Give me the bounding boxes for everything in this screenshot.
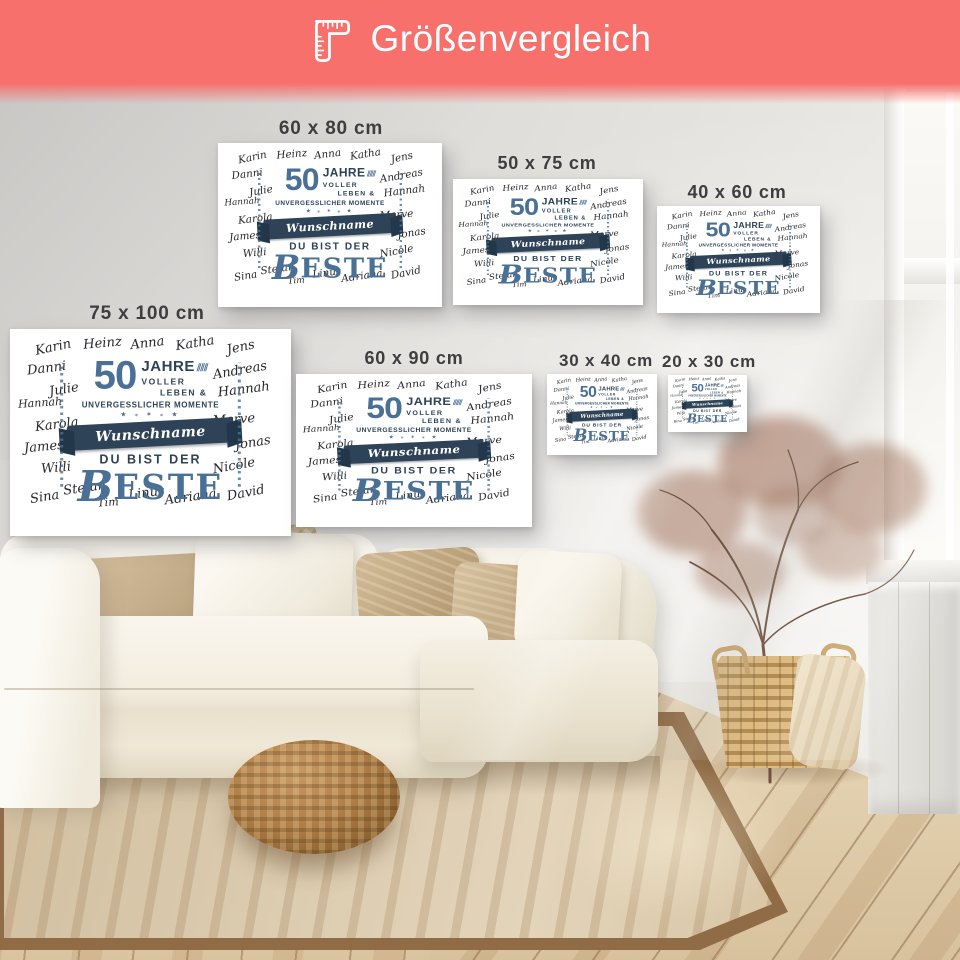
poster-artwork: KarinHeinzAnnaKathaJensDanniAndreasJulie… [296,374,532,527]
laurel-decor: ⫽⫽⫽ [620,387,624,391]
size-label: 30 x 40 cm [559,351,653,371]
artwork-headline-col: JAHRE⫽⫽⫽VOLLERLEBEN & [323,166,376,197]
artwork-voller: VOLLER [542,208,587,214]
decor-column-left [487,199,489,275]
rattan-pouf [228,740,400,854]
beste-initial: B [687,414,697,423]
size-label: 60 x 90 cm [364,348,463,369]
decor-column-left [258,169,260,267]
artwork-name: Heinz [575,377,590,383]
size-label: 20 x 30 cm [662,352,756,372]
artwork-name: Karin [469,184,495,196]
artwork-ribbon: Wunschname [569,408,635,421]
artwork-beste: BESTE [686,278,792,296]
artwork-ribbon: Wunschname [690,251,787,268]
artwork-name: Sina [312,492,338,505]
artwork-headline-col: JAHRE⫽⫽⫽VOLLERLEBEN & [542,197,587,221]
artwork-name: Sina [466,276,487,287]
beste-initial: B [573,429,587,442]
artwork-number: 50 [366,395,402,421]
artwork-name: Anna [534,183,558,193]
artwork-name: Karin [316,380,348,395]
poster-frame: KarinHeinzAnnaKathaJensDanniAndreasJulie… [668,375,747,432]
sofa-armrest [0,548,100,808]
artwork-name: Karin [237,150,268,166]
artwork-name: Karin [671,211,693,222]
artwork-jahre: JAHRE⫽⫽⫽ [406,396,461,407]
artwork-name: Katha [175,334,216,353]
artwork-wunschname: Wunschname [692,401,723,407]
artwork-voller: VOLLER [323,180,376,188]
beste-rest: ESTE [717,281,781,295]
decor-column-right [607,199,609,275]
artwork-wunschname: Wunschname [706,255,770,266]
beste-initial: B [78,470,114,504]
beste-rest: ESTE [300,258,388,280]
poster-frame: KarinHeinzAnnaKathaJensDanniAndreasJulie… [657,206,820,313]
artwork-name: Jens [599,185,619,196]
beste-rest: ESTE [587,431,630,442]
artwork-momente: UNVERGESSLICHER MOMENTE [486,222,610,228]
artwork-name: Sina [554,436,566,443]
poster-artwork: KarinHeinzAnnaKathaJensDanniAndreasJulie… [453,179,643,305]
artwork-center: 50JAHRE⫽⫽⫽VOLLERLEBEN &UNVERGESSLICHER M… [59,358,242,502]
artwork-beste: BESTE [257,253,403,280]
artwork-name: Hannah [224,196,260,207]
artwork-ribbon: Wunschname [263,213,397,240]
artwork-name: Hannah [458,220,488,229]
artwork-name: Karin [557,377,572,385]
artwork-number: 50 [510,197,539,219]
artwork-headline: 50JAHRE⫽⫽⫽VOLLERLEBEN & [257,166,403,197]
artwork-name: Katha [565,182,592,194]
laurel-decor: ⫽⫽⫽ [579,200,586,207]
artwork-name: Anna [397,379,427,392]
decor-column-right [238,362,241,486]
artwork-headline-col: JAHRE⫽⫽⫽VOLLERLEBEN & [406,395,461,424]
artwork-name: Heinz [357,379,390,391]
poster-artwork: KarinHeinzAnnaKathaJensDanniAndreasJulie… [10,329,291,536]
artwork-momente: UNVERGESSLICHER MOMENTE [686,243,792,248]
beste-rest: ESTE [113,475,223,502]
decor-column-left [567,387,568,436]
artwork-name: Heinz [502,183,529,193]
artwork-wunschname: Wunschname [580,411,624,420]
artwork-wunschname: Wunschname [286,217,375,234]
artwork-name: Karin [34,338,72,358]
ruler-icon [308,16,354,62]
beste-rest: ESTE [383,482,475,502]
poster-artwork: KarinHeinzAnnaKathaJensDanniAndreasJulie… [547,374,657,455]
product-image: 60 x 80 cmKarinHeinzAnnaKathaJensDanniAn… [0,0,960,960]
artwork-beste: BESTE [59,467,242,501]
decor-column-left [338,398,340,490]
artwork-headline-col: JAHRE⫽⫽⫽VOLLERLEBEN & [733,221,771,241]
artwork-name: Anna [314,148,342,162]
poster-artwork: KarinHeinzAnnaKathaJensDanniAndreasJulie… [218,143,442,307]
artwork-center: 50JAHRE⫽⫽⫽VOLLERLEBEN &UNVERGESSLICHER M… [686,221,792,295]
artwork-name: Heinz [276,148,308,161]
decor-column-right [732,384,733,418]
artwork-name: Katha [350,147,382,162]
artwork-voller: VOLLER [141,376,207,386]
size-label: 50 x 75 cm [497,153,596,174]
artwork-jahre: JAHRE⫽⫽⫽ [598,386,624,392]
artwork-headline: 50JAHRE⫽⫽⫽VOLLERLEBEN & [686,221,792,241]
decor-column-left [686,223,687,287]
artwork-name: Anna [594,376,608,383]
artwork-voller: VOLLER [406,409,461,416]
artwork-beste: BESTE [337,476,490,501]
beste-rest: ESTE [523,268,597,285]
artwork-number: 50 [580,385,597,399]
artwork-momente: UNVERGESSLICHER MOMENTE [257,199,403,206]
artwork-center: 50JAHRE⫽⫽⫽VOLLERLEBEN &UNVERGESSLICHER M… [257,166,403,280]
artwork-name: Katha [753,209,777,219]
laurel-decor: ⫽⫽⫽ [721,384,724,387]
artwork-leben: LEBEN & [542,214,587,220]
artwork-jahre: JAHRE⫽⫽⫽ [705,383,724,387]
artwork-name: Hannah [18,396,63,410]
artwork-name: Sina [233,269,258,283]
artwork-headline: 50JAHRE⫽⫽⫽VOLLERLEBEN & [337,395,490,424]
artwork-name: Hannah [303,423,341,433]
decor-column-left [682,384,683,418]
artwork-ribbon: Wunschname [344,439,485,464]
artwork-center: 50JAHRE⫽⫽⫽VOLLERLEBEN &UNVERGESSLICHER M… [486,197,610,285]
artwork-leben: LEBEN & [323,189,376,197]
beste-rest: ESTE [697,415,728,423]
artwork-jahre: JAHRE⫽⫽⫽ [323,167,376,179]
poster-frame: KarinHeinzAnnaKathaJensDanniAndreasJulie… [453,179,643,305]
artwork-leben: LEBEN & [406,417,461,424]
poster-frame: KarinHeinzAnnaKathaJensDanniAndreasJulie… [296,374,532,527]
artwork-wunschname: Wunschname [510,236,585,249]
artwork-name: Heinz [699,209,722,217]
artwork-name: Sina [29,488,60,505]
artwork-center: 50JAHRE⫽⫽⫽VOLLERLEBEN &UNVERGESSLICHER M… [682,383,733,423]
page-title: Größenvergleich [370,18,651,60]
artwork-headline: 50JAHRE⫽⫽⫽VOLLERLEBEN & [59,358,242,397]
artwork-name: Hannah [550,400,568,406]
artwork-name: Anna [130,335,165,352]
artwork-beste: BESTE [566,428,638,441]
artwork-beste: BESTE [682,413,733,422]
laurel-decor: ⫽⫽⫽ [453,399,462,407]
artwork-name: Heinz [83,336,123,352]
beste-initial: B [353,478,383,503]
decor-column-left [61,362,64,486]
artwork-ribbon: Wunschname [491,233,604,254]
artwork-ribbon: Wunschname [67,417,235,451]
size-label: 75 x 100 cm [89,303,205,325]
artwork-name: Jens [477,381,502,395]
artwork-headline-col: JAHRE⫽⫽⫽VOLLERLEBEN & [598,385,624,400]
artwork-name: Jens [390,151,414,166]
poster-frame: KarinHeinzAnnaKathaJensDanniAndreasJulie… [547,374,657,455]
artwork-name: Anna [727,209,748,218]
artwork-center: 50JAHRE⫽⫽⫽VOLLERLEBEN &UNVERGESSLICHER M… [566,385,638,441]
beste-initial: B [696,279,717,296]
artwork-jahre: JAHRE⫽⫽⫽ [141,359,207,374]
artwork-jahre: JAHRE⫽⫽⫽ [542,197,587,206]
artwork-name: Sina [668,288,686,297]
poster-frame: KarinHeinzAnnaKathaJensDanniAndreasJulie… [218,143,442,307]
laurel-decor: ⫽⫽⫽ [367,170,375,179]
artwork-number: 50 [706,221,731,239]
beste-initial: B [272,254,300,281]
artwork-leben: LEBEN & [705,391,724,394]
artwork-beste: BESTE [486,263,610,284]
artwork-number: 50 [285,166,319,194]
size-label: 40 x 60 cm [687,182,786,203]
artwork-headline-col: JAHRE⫽⫽⫽VOLLERLEBEN & [141,358,207,397]
sofa-seam [4,688,474,690]
artwork-leben: LEBEN & [141,387,207,397]
artwork-name: Sina [673,419,682,424]
poster-artwork: KarinHeinzAnnaKathaJensDanniAndreasJulie… [668,375,747,432]
artwork-number: 50 [692,383,704,393]
decor-column-right [636,387,637,436]
artwork-momente: UNVERGESSLICHER MOMENTE [337,427,490,434]
artwork-center: 50JAHRE⫽⫽⫽VOLLERLEBEN &UNVERGESSLICHER M… [337,395,490,501]
artwork-ribbon: Wunschname [684,399,731,408]
artwork-headline: 50JAHRE⫽⫽⫽VOLLERLEBEN & [682,383,733,394]
poster-artwork: KarinHeinzAnnaKathaJensDanniAndreasJulie… [657,206,820,313]
beste-initial: B [499,265,523,286]
artwork-momente: UNVERGESSLICHER MOMENTE [59,400,242,409]
laurel-decor: ⫽⫽⫽ [765,224,771,230]
size-label: 60 x 80 cm [279,118,383,140]
artwork-name: Katha [435,378,469,392]
artwork-leben: LEBEN & [598,397,624,401]
artwork-headline-col: JAHRE⫽⫽⫽VOLLERLEBEN & [705,383,724,394]
artwork-jahre: JAHRE⫽⫽⫽ [733,221,771,229]
artwork-name: Hannah [662,241,688,248]
artwork-leben: LEBEN & [733,236,771,241]
poster-frame: KarinHeinzAnnaKathaJensDanniAndreasJulie… [10,329,291,536]
decor-column-right [400,169,402,267]
artwork-wunschname: Wunschname [95,423,206,445]
artwork-name: Jens [225,339,255,358]
artwork-name: Jens [631,378,643,385]
header-content: Größenvergleich [308,16,651,62]
artwork-headline: 50JAHRE⫽⫽⫽VOLLERLEBEN & [566,385,638,400]
artwork-wunschname: Wunschname [367,443,460,459]
decor-column-right [789,223,790,287]
artwork-headline: 50JAHRE⫽⫽⫽VOLLERLEBEN & [486,197,610,221]
artwork-name: Katha [612,376,628,383]
artwork-name: Katha [714,376,725,381]
decor-column-right [487,398,489,490]
laurel-decor: ⫽⫽⫽ [197,363,207,374]
artwork-voller: VOLLER [733,230,771,235]
artwork-name: Jens [782,211,799,221]
header-banner: Größenvergleich [0,0,960,104]
artwork-number: 50 [94,358,137,393]
